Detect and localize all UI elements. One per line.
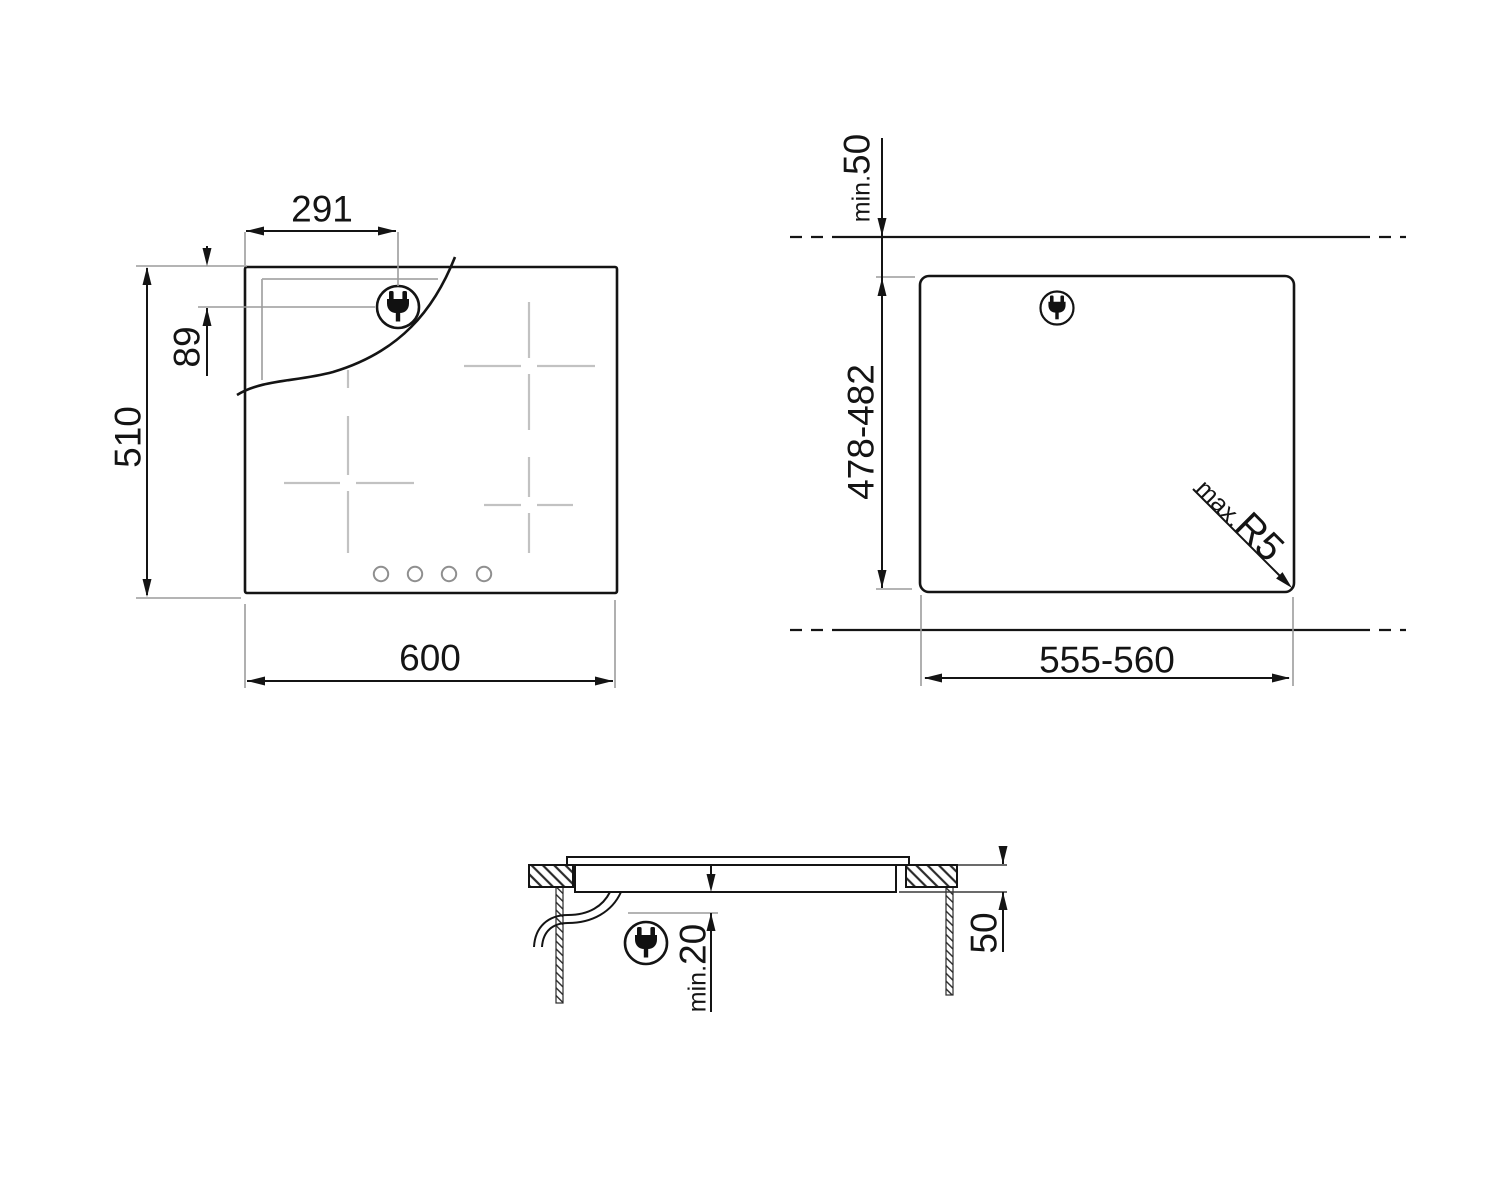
worktop-section-right xyxy=(906,865,957,887)
cabinet-panel-right xyxy=(946,887,953,995)
dimension-drawing-linework xyxy=(0,0,1500,1200)
hob-outline xyxy=(245,267,617,593)
label-hob-width: 600 xyxy=(399,640,461,677)
label-plug-offset-y: 89 xyxy=(169,326,206,367)
power-plug-icon xyxy=(625,922,667,964)
label-under-clearance: min.20 xyxy=(675,924,712,1012)
hob-glass-section xyxy=(567,857,909,865)
hob-body-section xyxy=(575,864,896,892)
power-plug-icon xyxy=(1041,292,1074,325)
section-view-linework xyxy=(529,846,1008,1012)
label-worktop-thickness: 50 xyxy=(966,912,1003,953)
label-wall-clearance-prefix: min. xyxy=(850,175,875,222)
power-plug-icon xyxy=(377,286,419,328)
label-under-clearance-value: 20 xyxy=(675,924,712,965)
cutout-view-linework xyxy=(790,138,1406,686)
label-hob-depth: 510 xyxy=(110,406,147,468)
label-wall-clearance: min.50 xyxy=(839,134,876,222)
label-under-clearance-prefix: min. xyxy=(686,965,711,1012)
cabinet-panel-left xyxy=(556,887,563,1003)
label-wall-clearance-value: 50 xyxy=(839,134,876,175)
label-plug-offset-x: 291 xyxy=(291,191,353,228)
supply-cable xyxy=(534,892,621,947)
top-view-linework xyxy=(136,227,617,689)
installation-diagram: 291 89 510 600 min.50 478-482 max.R5 555… xyxy=(0,0,1500,1200)
worktop-section-left xyxy=(529,865,573,887)
label-cutout-width: 555-560 xyxy=(1039,642,1175,679)
label-cutout-depth: 478-482 xyxy=(843,364,880,500)
